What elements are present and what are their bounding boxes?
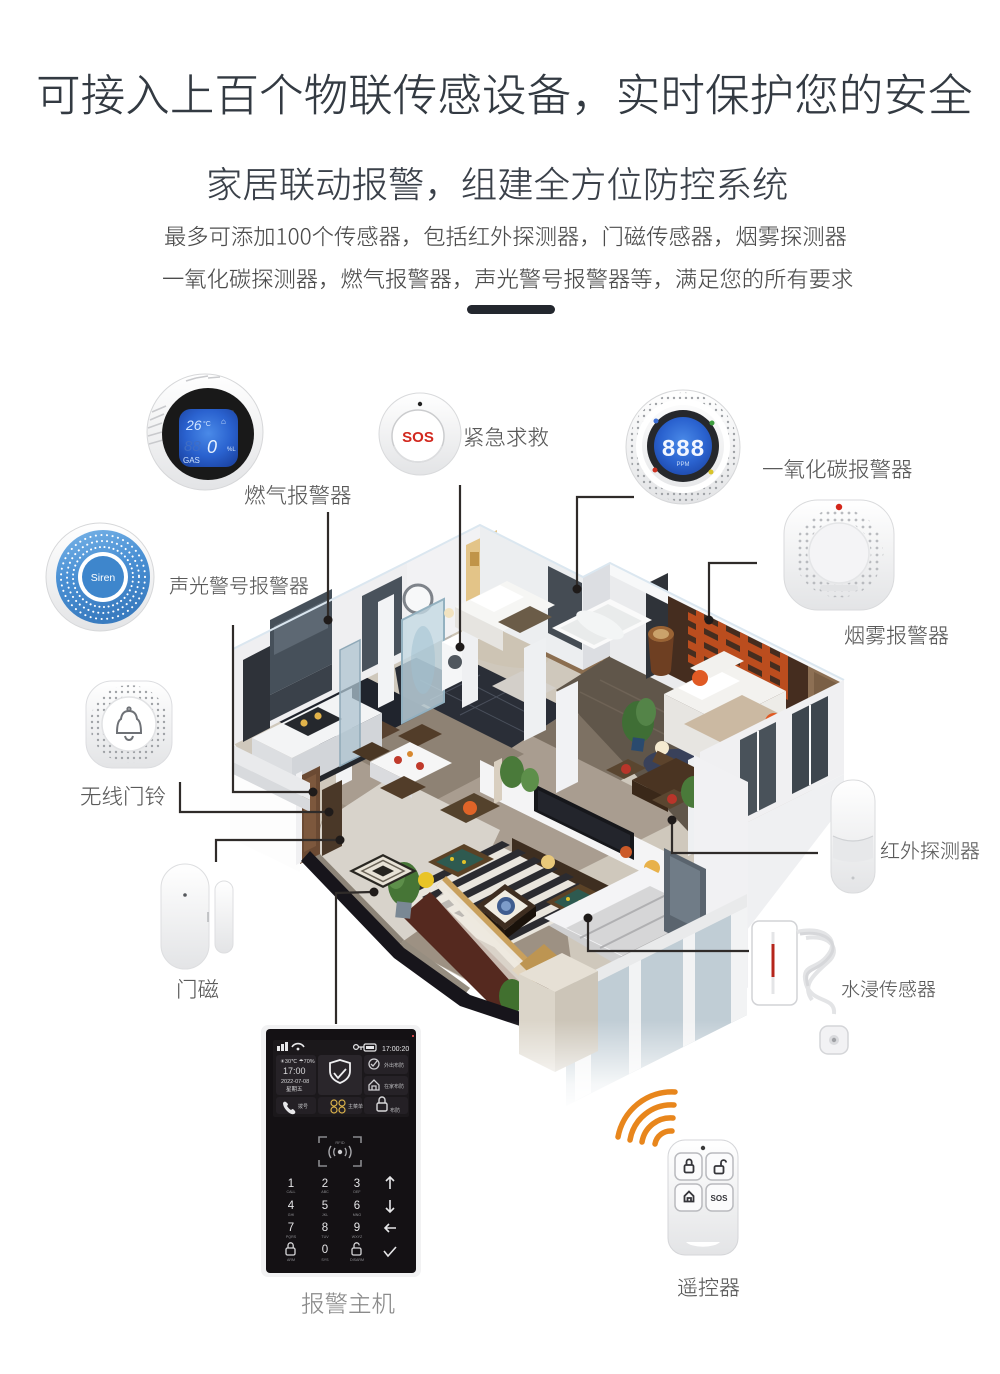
svg-text:SYS: SYS: [321, 1258, 329, 1262]
svg-text:JKL: JKL: [322, 1213, 328, 1217]
svg-text:在家布防: 在家布防: [384, 1083, 404, 1090]
svg-text:⌂: ⌂: [221, 417, 226, 426]
svg-text:DEF: DEF: [353, 1190, 361, 1194]
svg-text:GHI: GHI: [288, 1213, 294, 1217]
svg-text:星期五: 星期五: [286, 1086, 303, 1093]
svg-text:17:00:20: 17:00:20: [382, 1046, 409, 1053]
svg-text:7: 7: [288, 1222, 294, 1234]
svg-text:☀30℃ ☂70%: ☀30℃ ☂70%: [280, 1058, 315, 1065]
svg-text:ARM: ARM: [287, 1258, 295, 1262]
svg-text:ABC: ABC: [321, 1190, 329, 1194]
svg-text:布防: 布防: [390, 1107, 400, 1114]
svg-text:4: 4: [288, 1200, 295, 1212]
svg-text:PPM: PPM: [676, 462, 689, 468]
svg-text:1: 1: [288, 1178, 294, 1190]
svg-text:6: 6: [354, 1200, 360, 1212]
svg-text:拨号: 拨号: [298, 1103, 308, 1110]
svg-text:主菜单: 主菜单: [348, 1103, 363, 1110]
svg-text:WXYZ: WXYZ: [352, 1235, 363, 1239]
svg-text:17:00: 17:00: [283, 1066, 306, 1076]
svg-text:SOS: SOS: [711, 1194, 729, 1203]
svg-text:88: 88: [184, 438, 201, 455]
svg-text:SOS: SOS: [402, 429, 434, 446]
svg-text:3: 3: [354, 1178, 360, 1190]
svg-text:°C: °C: [203, 420, 211, 428]
svg-text:9: 9: [354, 1222, 360, 1234]
svg-text:2: 2: [322, 1178, 328, 1190]
svg-text:RFID: RFID: [335, 1140, 344, 1145]
svg-text:TUV: TUV: [321, 1235, 329, 1239]
svg-text:Siren: Siren: [91, 572, 116, 584]
svg-text:%L: %L: [227, 447, 236, 453]
svg-text:CALL: CALL: [287, 1190, 296, 1194]
svg-text:DISARM: DISARM: [350, 1258, 364, 1262]
svg-text:GAS: GAS: [183, 456, 200, 465]
svg-text:8: 8: [322, 1222, 328, 1234]
svg-text:0: 0: [207, 437, 217, 457]
svg-text:0: 0: [322, 1244, 328, 1256]
svg-text:5: 5: [322, 1200, 328, 1212]
svg-text:26: 26: [185, 417, 202, 433]
svg-text:PQRS: PQRS: [286, 1235, 297, 1239]
svg-text:888: 888: [661, 437, 704, 464]
svg-text:外出布防: 外出布防: [384, 1062, 404, 1069]
svg-text:MNO: MNO: [353, 1213, 362, 1217]
svg-text:2022-07-08: 2022-07-08: [281, 1079, 309, 1085]
